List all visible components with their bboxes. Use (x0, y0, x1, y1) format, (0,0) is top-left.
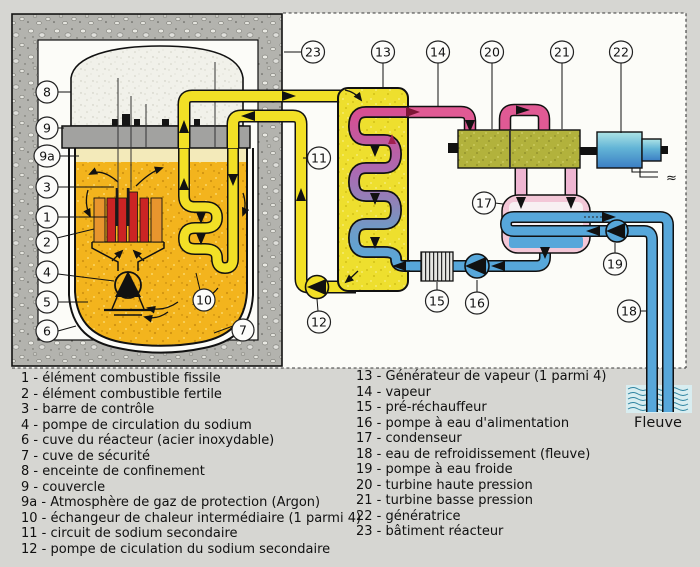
legend-item: 22 - génératrice (356, 509, 607, 525)
legend-item: 2 - élément combustible fertile (21, 387, 361, 403)
svg-text:14: 14 (430, 44, 446, 59)
legend-item: 4 - pompe de circulation du sodium (21, 418, 361, 434)
preheater (421, 252, 453, 281)
svg-text:2: 2 (43, 234, 51, 249)
legend-item: 9a - Atmosphère de gaz de protection (Ar… (21, 495, 361, 511)
lp-turbine (510, 130, 580, 168)
cooling-pump-icon (606, 220, 628, 242)
legend-item: 12 - pompe de ciculation du sodium secon… (21, 542, 361, 558)
secondary-pump-icon (306, 276, 329, 299)
legend-item: 15 - pré-réchauffeur (356, 400, 607, 416)
control-rod (116, 188, 119, 226)
svg-text:8: 8 (43, 84, 51, 99)
fissile-rod (129, 192, 138, 242)
fissile-rod (118, 198, 127, 242)
legend-item: 9 - couvercle (21, 480, 361, 496)
fertile-rod (151, 198, 162, 242)
svg-text:9a: 9a (39, 148, 55, 163)
svg-text:13: 13 (375, 44, 391, 59)
legend-item: 16 - pompe à eau d'alimentation (356, 416, 607, 432)
legend-item: 6 - cuve du réacteur (acier inoxydable) (21, 433, 361, 449)
steam-generator (338, 88, 410, 291)
river-label: Fleuve (634, 415, 682, 431)
control-drive (122, 114, 130, 126)
fissile-rod (107, 198, 116, 242)
exciter (642, 139, 661, 161)
svg-text:6: 6 (43, 323, 51, 338)
legend-item: 19 - pompe à eau froide (356, 462, 607, 478)
legend-item: 3 - barre de contrôle (21, 402, 361, 418)
legend-item: 21 - turbine basse pression (356, 493, 607, 509)
svg-text:19: 19 (607, 256, 623, 271)
legend-column-right: 13 - Générateur de vapeur (1 parmi 4)14 … (356, 369, 607, 540)
turbine-generator-shaft (580, 147, 597, 155)
fissile-rod (140, 198, 149, 242)
svg-text:22: 22 (613, 44, 629, 59)
control-drive (194, 119, 200, 126)
legend-item: 13 - Générateur de vapeur (1 parmi 4) (356, 369, 607, 385)
legend-item: 11 - circuit de sodium secondaire (21, 526, 361, 542)
shaft-stub (661, 146, 668, 154)
control-rod (127, 188, 130, 226)
control-drive (162, 119, 169, 126)
svg-text:16: 16 (469, 295, 485, 310)
svg-text:7: 7 (239, 322, 247, 337)
feedwater-pump-icon (465, 254, 489, 278)
containment-dome (71, 46, 243, 126)
control-drive (134, 119, 140, 126)
condensate-pool (509, 236, 583, 248)
legend-item: 8 - enceinte de confinement (21, 464, 361, 480)
svg-text:9: 9 (43, 120, 51, 135)
legend-item: 23 - bâtiment réacteur (356, 524, 607, 540)
svg-text:23: 23 (305, 44, 321, 59)
svg-text:1: 1 (43, 209, 51, 224)
legend-item: 18 - eau de refroidissement (fleuve) (356, 447, 607, 463)
hp-turbine (458, 130, 510, 168)
legend-item: 10 - échangeur de chaleur intermédiaire … (21, 511, 361, 527)
svg-text:20: 20 (484, 44, 500, 59)
reactor-schematic-page: Fleuve (0, 0, 700, 567)
svg-text:18: 18 (621, 303, 637, 318)
legend-column-left: 1 - élément combustible fissile2 - éléme… (21, 371, 361, 557)
svg-text:4: 4 (43, 264, 51, 279)
turbine-block (448, 130, 597, 168)
svg-text:15: 15 (429, 293, 445, 308)
fertile-rod (94, 198, 105, 242)
legend-item: 17 - condenseur (356, 431, 607, 447)
control-drive (112, 119, 118, 126)
svg-text:10: 10 (196, 292, 212, 307)
legend-item: 14 - vapeur (356, 385, 607, 401)
svg-text:17: 17 (476, 195, 492, 210)
legend-item: 20 - turbine haute pression (356, 478, 607, 494)
svg-text:11: 11 (311, 150, 327, 165)
legend-item: 7 - cuve de sécurité (21, 449, 361, 465)
legend-item: 1 - élément combustible fissile (21, 371, 361, 387)
condenser (502, 195, 590, 253)
svg-text:12: 12 (311, 314, 327, 329)
svg-text:21: 21 (554, 44, 570, 59)
electric-symbol: ≈ (666, 171, 677, 186)
svg-text:5: 5 (43, 294, 51, 309)
svg-text:3: 3 (43, 179, 51, 194)
